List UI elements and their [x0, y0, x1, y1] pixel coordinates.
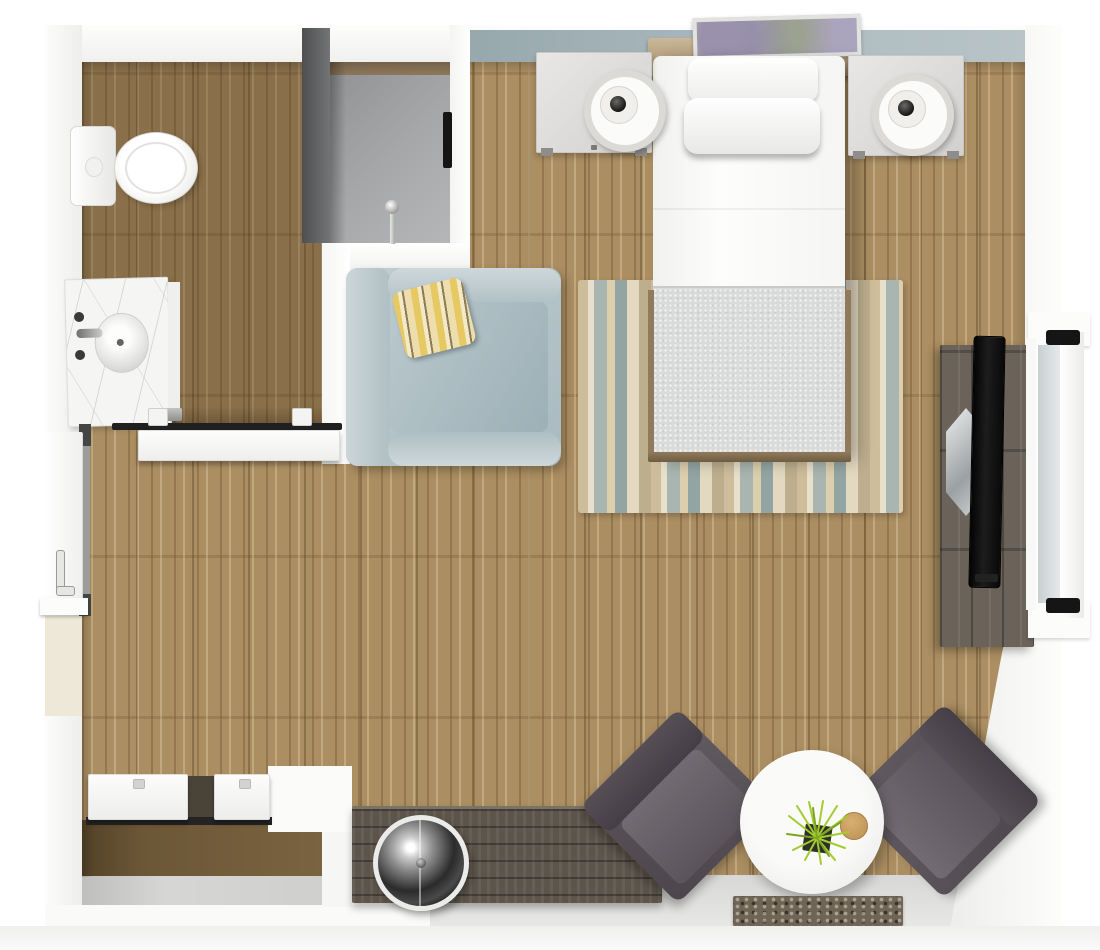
nightstand-foot [541, 148, 553, 156]
bed-pillow [684, 98, 820, 154]
vanity-side-panel [168, 282, 180, 420]
armchair-backrest [346, 268, 390, 466]
sphere-center [416, 858, 426, 868]
window-outer-sill [1060, 332, 1084, 618]
chrome-sphere-lamp [373, 815, 469, 911]
floor-plan-render [0, 0, 1100, 950]
wall-artwork [692, 14, 861, 60]
bottom-wall [45, 905, 430, 928]
window-glass [1036, 345, 1062, 603]
door-threshold [40, 598, 88, 615]
shower-valve-stem [390, 212, 395, 244]
window-inner-frame [1026, 338, 1036, 610]
shower-towel-bar [443, 112, 452, 168]
closet-header-wall [268, 766, 352, 832]
bed-frame-edge [648, 290, 654, 456]
drawer-handle [591, 145, 597, 150]
doormat [733, 896, 903, 926]
sheet-fold [653, 208, 845, 210]
faucet-knob [74, 312, 84, 322]
barn-door-hanger [292, 408, 312, 426]
toilet-seat [125, 142, 187, 194]
closet-door-handle [133, 779, 145, 789]
plant-blades [787, 801, 849, 864]
lamp-bulb-hub [610, 96, 626, 112]
armchair-arm [388, 432, 561, 466]
bed-pillow [688, 58, 818, 102]
closet-sliding-door [214, 774, 270, 820]
nightstand-foot [853, 151, 865, 159]
bed-frame-edge [845, 290, 851, 456]
faucet-knob [75, 350, 85, 360]
lamp-bulb-hub [898, 100, 914, 116]
tv-screen [968, 336, 1005, 589]
window-gasket [1046, 598, 1080, 613]
toilet-flush-button [85, 157, 103, 177]
closet-right-wall [322, 832, 352, 907]
shower-right-wall [450, 25, 470, 274]
left-wall-ivory-section [45, 616, 82, 716]
closet-opening-gap [186, 776, 214, 818]
exterior-ground-band [0, 926, 1100, 950]
closet-interior-floor [62, 876, 322, 907]
barn-door-hanger [148, 408, 168, 426]
grass-plant [783, 798, 853, 868]
bed-footboard [648, 452, 851, 462]
vanity-counter [64, 277, 172, 428]
barn-door [138, 430, 340, 461]
nightstand-foot [947, 151, 959, 159]
shower-wall-shadow [330, 55, 346, 243]
toilet-tank [70, 126, 116, 206]
shower-dark-wall [302, 28, 330, 243]
table-lamp-right [872, 74, 954, 156]
shower-valve [385, 200, 399, 214]
closet-sliding-door [88, 774, 188, 820]
toilet-bowl [114, 132, 198, 204]
door-handle-base [56, 586, 75, 596]
bed-blanket [653, 286, 845, 454]
table-lamp-left [584, 70, 666, 152]
faucet-spout [76, 328, 102, 338]
closet-door-handle [239, 779, 251, 789]
tv-stand [975, 574, 998, 582]
window-gasket [1046, 330, 1080, 345]
